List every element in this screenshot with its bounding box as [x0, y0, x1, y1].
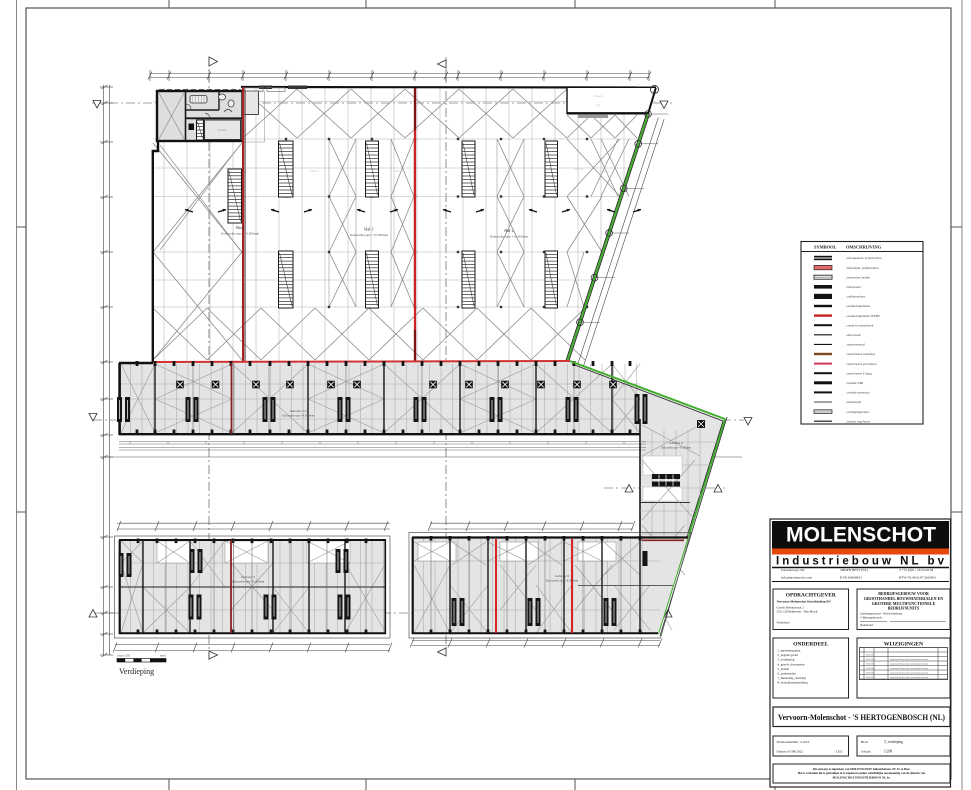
svg-text:BTW NL 8632.87.366.B01: BTW NL 8632.87.366.B01	[899, 575, 936, 579]
svg-text:..metselwerk snelbouw: ..metselwerk snelbouw	[846, 352, 877, 356]
svg-text:00.00.0000: 00.00.0000	[866, 655, 874, 657]
svg-text:cubeert: cubeert	[309, 169, 318, 173]
svg-text:..sandwichpanelen WEBO: ..sandwichpanelen WEBO	[846, 314, 881, 318]
svg-text:Blad:: Blad:	[861, 740, 868, 744]
svg-text:OMSCHRIJVING: OMSCHRIJVING	[846, 245, 882, 250]
svg-text:aanpassing indeling volgens op: aanpassing indeling volgens opmerkingen …	[890, 676, 929, 679]
svg-text:aanpassing indeling volgens op: aanpassing indeling volgens opmerkingen …	[890, 663, 929, 666]
svg-text:Dakrandhoogte +8.000mm: Dakrandhoogte +8.000mm	[282, 414, 315, 418]
svg-text:Fabrieksweg 19C: Fabrieksweg 19C	[781, 568, 806, 572]
svg-text:..sandwichpanelen: ..sandwichpanelen	[846, 304, 871, 308]
svg-text:aanpassing indeling volgens op: aanpassing indeling volgens opmerkingen …	[890, 658, 929, 661]
svg-text:aanpassing indeling volgens op: aanpassing indeling volgens opmerkingen …	[890, 667, 929, 670]
svg-text:Dakrandhoogte +10.000mm: Dakrandhoogte +10.000mm	[221, 232, 260, 236]
svg-text:8_bouwplaatsinrichting: 8_bouwplaatsinrichting	[778, 681, 809, 685]
svg-text:Gebouw 6: Gebouw 6	[555, 574, 569, 578]
svg-text:Vervoorn-Molenschot Ontwikkeli: Vervoorn-Molenschot Ontwikkeling BV	[777, 600, 832, 604]
svg-text:Dakrandhoogte +6.000mm: Dakrandhoogte +6.000mm	[661, 447, 692, 450]
svg-text:..wand in metselwerk: ..wand in metselwerk	[846, 323, 874, 327]
svg-text:MOLENSCHOT INDUSTRIEBOUW NL bv: MOLENSCHOT INDUSTRIEBOUW NL bv.	[833, 775, 891, 779]
svg-text:..isolatie mineraal: ..isolatie mineraal	[846, 391, 870, 395]
svg-text:cubeert: cubeert	[503, 169, 512, 173]
svg-text:cubeert: cubeert	[594, 94, 603, 98]
svg-text:MOLENSCHOT: MOLENSCHOT	[786, 524, 936, 547]
svg-text:00.00.0000: 00.00.0000	[866, 677, 874, 679]
svg-text:Verdieping: Verdieping	[119, 667, 154, 676]
svg-text:00.00.0000: 00.00.0000	[866, 673, 874, 675]
svg-text:schaal 1/200: schaal 1/200	[117, 655, 131, 658]
svg-text:..binnen regelwerk: ..binnen regelwerk	[846, 419, 871, 423]
svg-text:4_gevels_doorsnedes: 4_gevels_doorsnedes	[778, 662, 806, 666]
svg-text:cubeert: cubeert	[573, 167, 582, 171]
svg-text:Shop: Shop	[236, 225, 245, 230]
svg-text:Nederland: Nederland	[777, 621, 790, 625]
svg-text:3_verdieping: 3_verdieping	[778, 658, 795, 662]
svg-text:Dossiernummer: 2.1010: Dossiernummer: 2.1010	[777, 740, 810, 744]
svg-text:Vervoorn-Molenschot - 'S HERTO: Vervoorn-Molenschot - 'S HERTOGENBOSCH (…	[778, 713, 945, 722]
svg-text:00.00.0000: 00.00.0000	[866, 664, 874, 666]
svg-text:..betonvloer: ..betonvloer	[846, 285, 862, 289]
svg-text:..deurwand: ..deurwand	[846, 333, 861, 337]
svg-text:1/200: 1/200	[884, 750, 892, 754]
svg-text:Nederland: Nederland	[860, 623, 873, 627]
svg-text:..betonvloer kelder: ..betonvloer kelder	[846, 275, 872, 279]
svg-text:..verdiepingsvloer: ..verdiepingsvloer	[846, 410, 870, 414]
svg-text:LEG: LEG	[836, 750, 843, 754]
svg-text:cubeert: cubeert	[599, 169, 608, 173]
svg-text:wel: wel	[596, 103, 600, 107]
svg-text:BEDRIJFSUNITS: BEDRIJFSUNITS	[888, 606, 920, 611]
svg-text:00.00.0000: 00.00.0000	[866, 659, 874, 661]
svg-text:Schaal:: Schaal:	[861, 750, 871, 754]
svg-text:5_details: 5_details	[778, 667, 790, 671]
svg-text:6_parkeerplan: 6_parkeerplan	[778, 672, 797, 676]
svg-text:WIJZIGINGEN: WIJZIGINGEN	[884, 642, 923, 648]
svg-text:Gebouw 4: Gebouw 4	[669, 441, 683, 445]
svg-text:Dakrandhoogte +8.000mm: Dakrandhoogte +8.000mm	[232, 580, 265, 584]
svg-text:1_inplantingsplan: 1_inplantingsplan	[778, 649, 801, 653]
svg-text:..isolatie PIR: ..isolatie PIR	[846, 381, 863, 385]
svg-text:'s-Hertogenbosch: 's-Hertogenbosch	[860, 616, 882, 620]
svg-text:info@molenschot.com: info@molenschot.com	[781, 575, 812, 579]
svg-text:cubeert: cubeert	[393, 169, 402, 173]
svg-text:meter: meter	[160, 655, 166, 658]
svg-text:aanpassing indeling volgens op: aanpassing indeling volgens opmerkingen …	[890, 672, 929, 675]
svg-text:Gebouw 2-3: Gebouw 2-3	[290, 409, 307, 413]
svg-text:00.00.0000: 00.00.0000	[866, 668, 874, 670]
svg-text:3_verdieping: 3_verdieping	[884, 740, 903, 744]
svg-text:7_funderihg_riolering: 7_funderihg_riolering	[778, 676, 807, 680]
svg-text:SYMBOOL: SYMBOOL	[814, 245, 837, 250]
svg-text:Dakrandhoogte +10.000mm: Dakrandhoogte +10.000mm	[490, 235, 529, 239]
svg-text:..systeemwand: ..systeemwand	[846, 343, 865, 347]
svg-text:Hal 1: Hal 1	[364, 227, 373, 232]
svg-text:2_begane grond: 2_begane grond	[778, 653, 799, 657]
svg-text:..vulbetonvloer: ..vulbetonvloer	[846, 295, 866, 299]
svg-text:kantine: kantine	[218, 128, 227, 132]
svg-text:5683PN BEST (NL): 5683PN BEST (NL)	[840, 568, 868, 572]
svg-text:Dakrandhoogte +10.000mm: Dakrandhoogte +10.000mm	[350, 233, 389, 237]
svg-text:..metselwerk T-zang: ..metselwerk T-zang	[846, 371, 873, 375]
svg-text:Datum: 05/09/2022: Datum: 05/09/2022	[777, 750, 804, 754]
svg-text:Dakrandhoogte +8.000mm: Dakrandhoogte +8.000mm	[546, 579, 579, 583]
svg-text:5221 CB Bokhoven - Den Bosch: 5221 CB Bokhoven - Den Bosch	[777, 609, 818, 613]
svg-text:KVK 84628423: KVK 84628423	[840, 575, 862, 579]
svg-text:..balustrade: ..balustrade	[846, 400, 862, 404]
svg-text:Hal 2: Hal 2	[504, 228, 513, 233]
svg-text:T +31 (0)6 .. 18 59 28 28: T +31 (0)6 .. 18 59 28 28	[899, 568, 933, 572]
svg-text:OPDRACHTGEVER: OPDRACHTGEVER	[786, 592, 836, 598]
svg-text:ONDERDEEL: ONDERDEEL	[793, 642, 829, 648]
svg-text:..metselwerk gevelsteen: ..metselwerk gevelsteen	[846, 362, 877, 366]
svg-text:Gebouw 5: Gebouw 5	[241, 575, 255, 579]
